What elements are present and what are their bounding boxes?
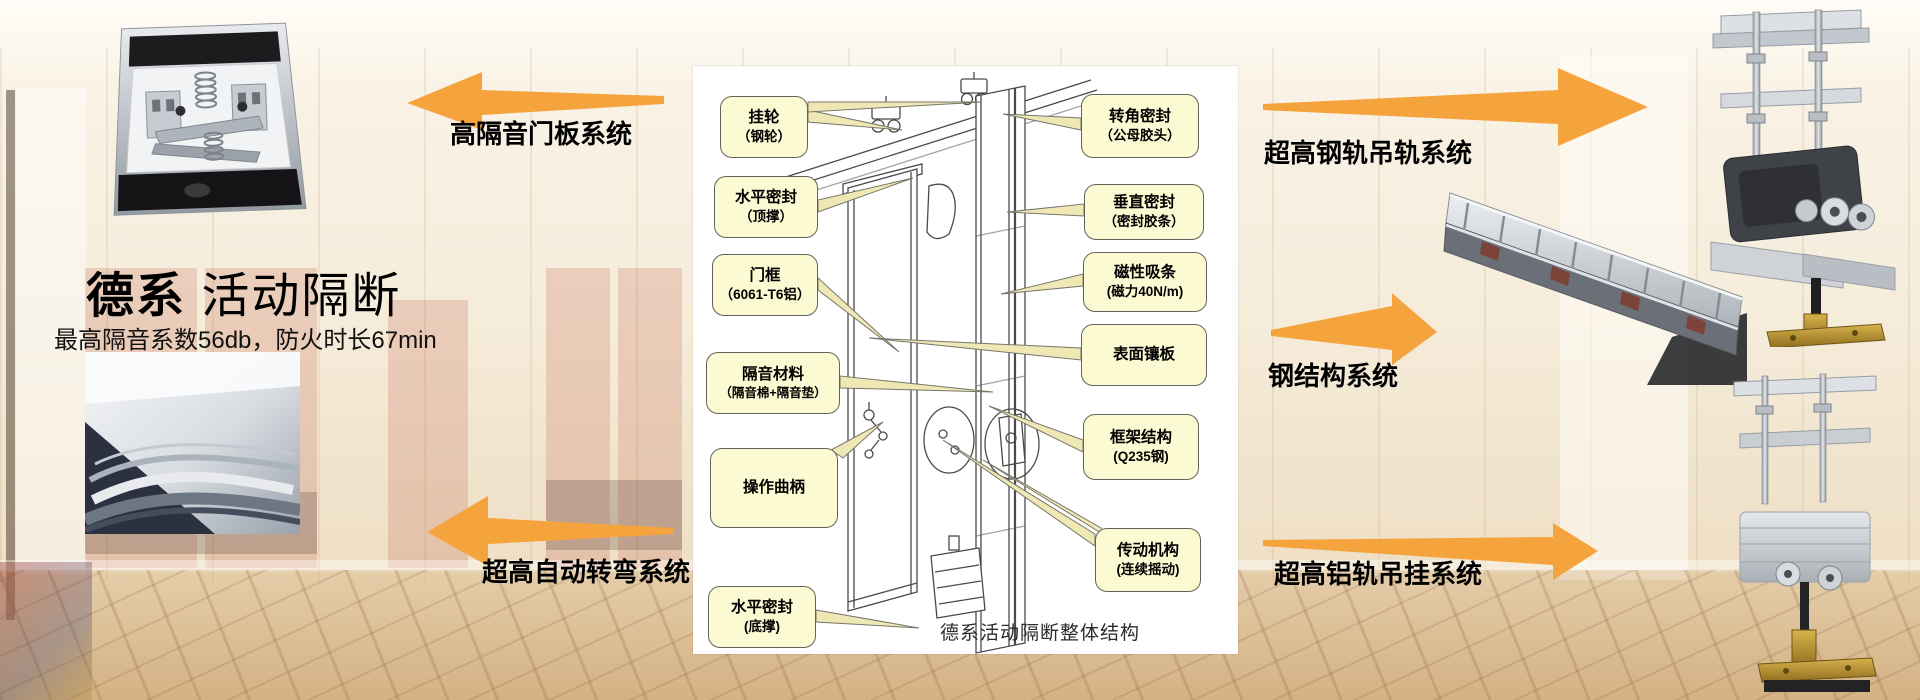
callout-operating-crank: 操作曲柄 [710, 448, 838, 528]
callout-line: 转角密封 [1109, 107, 1171, 127]
callout-line: （钢轮） [737, 128, 791, 146]
product-title: 德系 活动隔断 [86, 256, 506, 326]
product-title-bold: 德系 [86, 270, 186, 323]
feature-label-steel-structure: 钢结构系统 [1268, 356, 1398, 393]
callout-line: (连续摇动) [1117, 561, 1180, 579]
carpet-corner-detail [0, 562, 92, 700]
callout-line: （公母胶头） [1100, 127, 1181, 145]
aluminum-rail-trolley-photo [1700, 372, 1915, 700]
callout-soundproof-material: 隔音材料 （隔音棉+隔音垫） [706, 352, 840, 414]
door-panel-top-mechanism-photo [91, 8, 319, 244]
callout-door-frame: 门框 （6061-T6铝） [712, 254, 818, 316]
callout-line: (磁力40N/m) [1107, 283, 1184, 301]
callout-frame-structure: 框架结构 (Q235钢) [1083, 414, 1199, 480]
callout-line: 磁性吸条 [1114, 263, 1176, 283]
callout-line: （顶撑） [739, 208, 793, 226]
callout-line: 挂轮 [748, 108, 779, 128]
callout-magnetic-strip: 磁性吸条 (磁力40N/m) [1083, 252, 1207, 312]
callout-line: (Q235钢) [1113, 448, 1169, 466]
feature-label-door-panel: 高隔音门板系统 [450, 114, 632, 151]
callout-line: 框架结构 [1110, 428, 1172, 448]
slide: 德系 活动隔断 最高隔音系数56db，防火时长67min [0, 0, 1920, 700]
feature-label-steel-rail: 超高钢轨吊轨系统 [1264, 133, 1472, 170]
callout-line: 门框 [749, 266, 780, 286]
callout-horizontal-seal-top: 水平密封 （顶撑） [714, 176, 818, 238]
left-wall-edge [6, 90, 15, 620]
product-title-light: 活动隔断 [201, 270, 401, 323]
callout-surface-panel: 表面镶板 [1081, 324, 1207, 386]
product-subtitle: 最高隔音系数56db，防火时长67min [54, 320, 514, 355]
feature-label-aluminum-rail: 超高铝轨吊挂系统 [1274, 554, 1482, 591]
diagram-panel: 挂轮 （钢轮） 水平密封 （顶撑） 门框 （6061-T6铝） 隔音材料 （隔音… [693, 66, 1238, 654]
callout-vertical-seal: 垂直密封 （密封胶条） [1084, 184, 1204, 240]
callout-line: 隔音材料 [742, 365, 804, 385]
callout-line: （6061-T6铝） [720, 286, 811, 304]
callout-horizontal-seal-bottom: 水平密封 (底撑) [708, 586, 816, 648]
callout-line: 表面镶板 [1113, 345, 1175, 365]
callout-line: 垂直密封 [1113, 193, 1175, 213]
callout-corner-seal: 转角密封 （公母胶头） [1081, 94, 1199, 158]
callout-hanger-wheel: 挂轮 （钢轮） [720, 96, 808, 158]
callout-line: (底撑) [744, 618, 780, 636]
callout-transmission: 传动机构 (连续摇动) [1095, 528, 1201, 592]
callout-line: 水平密封 [735, 188, 797, 208]
steel-structure-frame-photo [1442, 185, 1747, 385]
callout-line: （密封胶条） [1104, 213, 1185, 231]
callout-line: 水平密封 [731, 598, 793, 618]
diagram-caption: 德系活动隔断整体结构 [940, 618, 1175, 645]
callout-line: （隔音棉+隔音垫） [719, 385, 826, 402]
feature-label-auto-turning: 超高自动转弯系统 [482, 552, 690, 589]
callout-line: 传动机构 [1117, 541, 1179, 561]
callout-line: 操作曲柄 [743, 478, 805, 498]
curved-track-detail-photo [85, 352, 300, 534]
